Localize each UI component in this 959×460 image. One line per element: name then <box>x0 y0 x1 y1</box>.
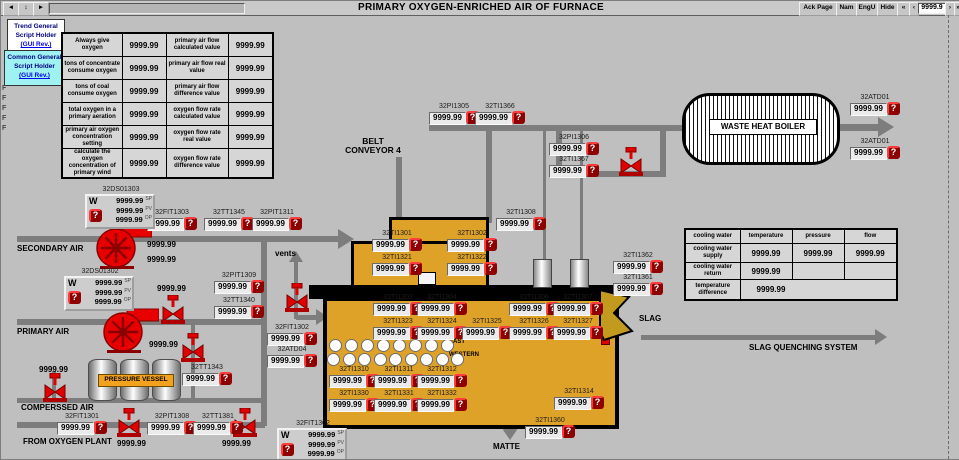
boiler-outlet-arrowhead <box>878 117 894 137</box>
controller-value: 9999.99 OP <box>296 449 344 459</box>
oxygen-summary-table: Always give oxygen9999.99primary air flo… <box>61 32 274 179</box>
oxygen-table-label: oxygen flow rate difference value <box>166 149 228 179</box>
oxygen-table-value: 9999.99 <box>122 33 166 57</box>
tag-label: 32PIT1311 <box>244 209 310 216</box>
tag-value: 9999.99 <box>329 375 366 388</box>
cooling-table-value: 9999.99 <box>792 244 844 263</box>
holder-line: Common General <box>5 53 64 62</box>
hide-button[interactable]: Hide <box>877 2 898 16</box>
controller-32DS01302[interactable]: 32DS01302W9999.99 SP9999.99 PV9999.99 OP… <box>64 276 134 311</box>
alarm-question-indicator[interactable]: ? <box>304 332 317 345</box>
alarm-question-indicator[interactable]: ? <box>409 238 422 251</box>
page-title: PRIMARY OXYGEN-ENRICHED AIR OF FURNACE <box>251 2 711 13</box>
tag-label: 32TI1302 <box>439 230 505 237</box>
oxygen-table-value: 9999.99 <box>228 57 273 80</box>
secondary-air-fan[interactable] <box>94 223 152 269</box>
tag-value: 9999.99 <box>475 112 512 125</box>
matte-label: MATTE <box>493 442 520 451</box>
tag-label: 32PIT1309 <box>206 272 272 279</box>
valve-icon <box>117 408 141 438</box>
belt-conveyor-arrow-shaft <box>396 157 402 223</box>
controller-value: 9999.99 OP <box>104 215 152 225</box>
alarm-question-indicator[interactable]: ? <box>454 398 467 411</box>
tag-value: 9999.99 <box>525 426 562 439</box>
tag-value: 9999.99 <box>509 327 546 340</box>
process-value: 9999.99 <box>147 255 176 264</box>
sightglass-circle <box>389 353 402 366</box>
alarm-question-indicator[interactable]: ? <box>251 280 264 293</box>
controller-value: 9999.99 OP <box>83 297 131 307</box>
alarm-question-indicator[interactable]: ? <box>533 217 546 230</box>
tag-value: 9999.99 <box>613 283 650 296</box>
alarm-question-indicator[interactable]: ? <box>562 425 575 438</box>
f-mark: F <box>2 105 6 112</box>
alarm-question-indicator[interactable]: ? <box>230 421 243 434</box>
tag-value: 9999.99 <box>613 261 650 274</box>
slag-quenching-label: SLAG QUENCHING SYSTEM <box>749 343 857 352</box>
tag-value: 9999.99 <box>372 263 409 276</box>
tag-label: 32TT1381 <box>185 413 251 420</box>
f-mark: F <box>2 115 6 122</box>
oxygen-table-value: 9999.99 <box>228 103 273 126</box>
oxygen-table-value: 9999.99 <box>228 80 273 103</box>
ack-page-button[interactable]: Ack Page <box>799 2 837 16</box>
process-value: 9999.99 <box>149 340 178 349</box>
alarm-question-indicator[interactable]: ? <box>650 282 663 295</box>
oxygen-table-label: primary air flow real value <box>166 57 228 80</box>
sightglass-circle <box>436 353 449 366</box>
process-value: 9999.99 <box>222 439 251 448</box>
alarm-question-indicator[interactable]: ? <box>219 372 232 385</box>
pager-value-field[interactable]: 9999.9 <box>918 3 946 14</box>
tag-label: 32TI1332 <box>409 390 475 397</box>
valve-icon <box>43 373 67 403</box>
tag-value: 9999.99 <box>374 375 411 388</box>
slag-label: SLAG <box>639 314 661 323</box>
alarm-question-indicator[interactable]: ? <box>89 209 102 222</box>
alarm-question-indicator[interactable]: ? <box>887 102 900 115</box>
sightglass-circle <box>409 339 422 352</box>
tag-value: 9999.99 <box>214 306 251 319</box>
tag-label: 32TI1366 <box>467 103 533 110</box>
nav-prev-page-button[interactable]: ◄ <box>3 2 19 16</box>
cooling-table-value: 9999.99 <box>740 263 792 280</box>
tag-value: 9999.99 <box>462 327 499 340</box>
tag-label: 32TI1360 <box>517 417 583 424</box>
alarm-question-indicator[interactable]: ? <box>650 260 663 273</box>
tag-value: 9999.99 <box>252 218 289 231</box>
tag-label: 32TI1314 <box>546 388 612 395</box>
tag-label: 32ATD01 <box>842 138 908 145</box>
alarm-question-indicator[interactable]: ? <box>512 111 525 124</box>
tag-value: 9999.99 <box>374 399 411 412</box>
sightglass-circle <box>358 353 371 366</box>
oxygen-line-valve-1[interactable] <box>117 408 141 438</box>
tag-value: 9999.99 <box>417 303 454 316</box>
tag-label: 32TI1327 <box>545 318 611 325</box>
oxygen-table-value: 9999.99 <box>228 33 273 57</box>
engunits-button[interactable]: EngU <box>856 2 878 16</box>
alarm-question-indicator[interactable]: ? <box>304 354 317 367</box>
nav-next-page-button[interactable]: ► <box>33 2 49 16</box>
sightglass-circle <box>361 339 374 352</box>
tag-value: 9999.99 <box>417 399 454 412</box>
sightglass-circle <box>425 339 438 352</box>
tag-value: 9999.99 <box>373 303 410 316</box>
tag-label: 32TI1308 <box>488 209 554 216</box>
alarm-question-indicator[interactable]: ? <box>409 262 422 275</box>
controller-label: 32DS01303 <box>85 186 157 193</box>
alarm-question-indicator[interactable]: ? <box>590 302 603 315</box>
process-value: 9999.99 <box>39 365 68 374</box>
compressed-air-label: COMPERSSED AIR <box>21 403 94 412</box>
cooling-table-label: cooling water supply <box>685 244 740 263</box>
oxygen-table-label: primary air flow difference value <box>166 80 228 103</box>
alarm-question-indicator[interactable]: ? <box>454 302 467 315</box>
pipe <box>543 131 546 261</box>
tag-value: 9999.99 <box>429 112 466 125</box>
valve-icon <box>161 295 185 325</box>
controller-value: 9999.99 SP <box>104 196 152 206</box>
f-mark: F <box>2 125 6 132</box>
tag-label: 32TT1343 <box>174 364 240 371</box>
tag-value: 9999.99 <box>417 375 454 388</box>
tag-value: 9999.99 <box>373 327 410 340</box>
tag-value: 9999.99 <box>214 281 251 294</box>
controller-mode: W <box>89 196 98 206</box>
tag-value: 9999.99 <box>329 399 366 412</box>
trend-script-holder[interactable]: Trend General Script Holder (GUI Rev.) <box>7 19 65 52</box>
oxygen-table-label: tons of concentrate consume oxygen <box>62 57 122 80</box>
alarm-question-indicator[interactable]: ? <box>94 421 107 434</box>
alarm-question-indicator[interactable]: ? <box>887 146 900 159</box>
sightglass-circle <box>345 339 358 352</box>
cooling-table-label: temperature difference <box>685 280 740 301</box>
controller-value: 9999.99 SP <box>296 430 344 440</box>
oxygen-table-label: tons of coal consume oxygen <box>62 80 122 103</box>
valve-icon <box>619 147 643 177</box>
process-value: 9999.99 <box>147 240 176 249</box>
holder-line: Trend General <box>8 22 64 31</box>
sightglass-circle <box>343 353 356 366</box>
tag-label: 32FIT1301 <box>49 413 115 420</box>
oxygen-table-label: total oxygen in a primary aeration <box>62 103 122 126</box>
holder-line: Script Holder <box>8 31 64 40</box>
alarm-question-indicator[interactable]: ? <box>289 217 302 230</box>
vents-label: vents <box>275 249 296 258</box>
fan-icon <box>94 223 152 269</box>
tag-value: 9999.99 <box>372 239 409 252</box>
controller-label: 32DS01302 <box>64 268 136 275</box>
primary-air-label: PRIMARY AIR <box>17 327 69 336</box>
tag-value: 9999.99 <box>182 373 219 386</box>
controller-value: 9999.99 SP <box>83 278 131 288</box>
tag-label: 32TI1307 <box>545 294 611 301</box>
cooling-table-label: cooling water return <box>685 263 740 280</box>
slag-line-arrowhead <box>875 329 887 345</box>
pager-last-button[interactable]: » <box>954 2 959 16</box>
tag-value: 9999.99 <box>850 103 887 116</box>
tag-value: 9999.99 <box>549 143 586 156</box>
from-oxygen-plant-label: FROM OXYGEN PLANT <box>23 437 112 446</box>
oxygen-table-value: 9999.99 <box>228 149 273 179</box>
controller-label: 32FIT1302 <box>277 420 349 427</box>
common-script-holder[interactable]: Common General Script Holder (GUI Rev.) <box>4 50 65 86</box>
controller-32FIT1302[interactable]: 32FIT1302W9999.99 SP9999.99 PV9999.99 OP… <box>277 428 347 460</box>
alarm-question-indicator[interactable]: ? <box>484 262 497 275</box>
alarm-question-indicator[interactable]: ? <box>586 164 599 177</box>
f-mark: F <box>2 85 6 92</box>
sightglass-circle <box>405 353 418 366</box>
tag-label: 32TI1367 <box>541 156 607 163</box>
controller-value: 9999.99 PV <box>104 206 152 216</box>
tag-value: 9999.99 <box>553 303 590 316</box>
cooling-table-value: 9999.99 <box>844 244 897 263</box>
controller-value: 9999.99 PV <box>83 288 131 298</box>
sightglass-circle <box>441 339 454 352</box>
tag-label: 32ATD01 <box>842 94 908 101</box>
pipe <box>834 124 880 131</box>
tag-value: 9999.99 <box>267 333 304 346</box>
nav-updown-button[interactable]: ↕ <box>18 2 34 16</box>
alarm-question-indicator[interactable]: ? <box>281 443 294 456</box>
holder-line: Script Holder <box>5 62 64 71</box>
controller-32DS01303[interactable]: 32DS01303W9999.99 SP9999.99 PV9999.99 OP… <box>85 194 155 229</box>
tag-value: 9999.99 <box>850 147 887 160</box>
name-button[interactable]: Nam <box>836 2 857 16</box>
title-bar: ◄ ↕ ► PRIMARY OXYGEN-ENRICHED AIR OF FUR… <box>1 1 959 16</box>
pipe-secondary-air <box>17 236 339 242</box>
tag-label: 32TI1362 <box>605 252 671 259</box>
holder-link[interactable]: (GUI Rev.) <box>8 40 64 49</box>
sightglass-circle <box>374 353 387 366</box>
title-bar-field <box>49 3 245 14</box>
alarm-question-indicator[interactable]: ? <box>251 305 264 318</box>
tag-value: 9999.99 <box>57 422 94 435</box>
oxygen-table-value: 9999.99 <box>122 149 166 179</box>
tag-label: 32TT1340 <box>206 297 272 304</box>
oxygen-table-label: oxygen flow rate real value <box>166 126 228 149</box>
oxygen-table-value: 9999.99 <box>122 57 166 80</box>
tag-value: 9999.99 <box>417 327 454 340</box>
oxygen-table-value: 9999.99 <box>122 103 166 126</box>
oxygen-table-label: primary air flow calculated value <box>166 33 228 57</box>
sightglass-circle <box>377 339 390 352</box>
tag-label: 32TI1321 <box>364 254 430 261</box>
pipe-slag <box>641 335 877 340</box>
process-value: 9999.99 <box>117 439 146 448</box>
alarm-question-indicator[interactable]: ? <box>591 396 604 409</box>
tag-value: 9999.99 <box>554 397 591 410</box>
sightglass-circle <box>420 353 433 366</box>
pressure-vessel-label: PRESSURE VESSEL <box>98 374 174 387</box>
vents-valve[interactable] <box>285 283 309 313</box>
cooling-table-value: 9999.99 <box>740 280 897 301</box>
controller-mode: W <box>68 278 77 288</box>
tag-label: 32TI1301 <box>364 230 430 237</box>
oxygen-table-label: oxygen flow rate calculated value <box>166 103 228 126</box>
tag-value: 9999.99 <box>193 422 230 435</box>
cooling-water-table: cooling watertemperaturepressureflowcool… <box>684 228 898 301</box>
cooling-table-header: flow <box>844 229 897 244</box>
tag-value: 9999.99 <box>553 327 590 340</box>
holder-link[interactable]: (GUI Rev.) <box>5 71 64 80</box>
tag-label: 32PI1306 <box>541 134 607 141</box>
tag-label: 32TI1312 <box>409 366 475 373</box>
alarm-question-indicator[interactable]: ? <box>590 326 603 339</box>
pipe <box>660 125 666 177</box>
alarm-question-indicator[interactable]: ? <box>454 374 467 387</box>
branch-valve[interactable] <box>181 333 205 363</box>
page-boundary-separator <box>948 15 949 459</box>
tag-value: 9999.99 <box>447 239 484 252</box>
controller-mode: W <box>281 430 290 440</box>
oxygen-table-value: 9999.99 <box>122 126 166 149</box>
oxygen-table-label: Always give oxygen <box>62 33 122 57</box>
scada-screen: ◄ ↕ ► PRIMARY OXYGEN-ENRICHED AIR OF FUR… <box>0 0 959 460</box>
tag-label: 32TI1304 <box>409 294 475 301</box>
cooling-table-value <box>792 263 844 280</box>
tag-value: 9999.99 <box>447 263 484 276</box>
oxygen-table-label: primary air oxygen concentration setting <box>62 126 122 149</box>
cooling-table-header: temperature <box>740 229 792 244</box>
cooling-table-header: cooling water <box>685 229 740 244</box>
tag-label: 32ATD04 <box>259 346 325 353</box>
compressed-air-valve[interactable] <box>43 373 67 403</box>
furnace-uptake-stack <box>570 259 589 288</box>
oxygen-table-label: calculate the oxygen concentration of pr… <box>62 149 122 179</box>
valve-icon <box>285 283 309 313</box>
tag-value: 9999.99 <box>147 422 184 435</box>
boiler-line-valve[interactable] <box>619 147 643 177</box>
oxygen-table-value: 9999.99 <box>122 80 166 103</box>
furnace-uptake-stack <box>533 259 552 288</box>
cooling-table-header: pressure <box>792 229 844 244</box>
pipe <box>296 315 318 320</box>
tag-value: 9999.99 <box>267 355 304 368</box>
oxygen-table-value: 9999.99 <box>228 126 273 149</box>
cooling-table-value: 9999.99 <box>740 244 792 263</box>
belt-conveyor-label: BELT CONVEYOR 4 <box>339 137 407 155</box>
tag-label: 32TI1322 <box>439 254 505 261</box>
sightglass-circle <box>329 339 342 352</box>
alarm-question-indicator[interactable]: ? <box>484 238 497 251</box>
sightglass-circle <box>327 353 340 366</box>
alarm-question-indicator[interactable]: ? <box>68 291 81 304</box>
alarm-question-indicator[interactable]: ? <box>184 217 197 230</box>
process-value: 9999.99 <box>157 284 186 293</box>
alarm-question-indicator[interactable]: ? <box>586 142 599 155</box>
secondary-air-label: SECONDARY AIR <box>17 244 83 253</box>
sightglass-circle <box>393 339 406 352</box>
controller-value: 9999.99 PV <box>296 440 344 450</box>
sightglass-circle <box>451 353 464 366</box>
f-mark: F <box>2 95 6 102</box>
primary-air-valve[interactable] <box>161 295 185 325</box>
tag-value: 9999.99 <box>509 303 546 316</box>
waste-heat-boiler-label: WASTE HEAT BOILER <box>709 119 817 135</box>
tag-label: 32FIT1302 <box>259 324 325 331</box>
cooling-table-value <box>844 263 897 280</box>
tag-label: 32TI1361 <box>605 274 671 281</box>
valve-icon <box>181 333 205 363</box>
tag-value: 9999.99 <box>204 218 241 231</box>
tag-value: 9999.99 <box>549 165 586 178</box>
